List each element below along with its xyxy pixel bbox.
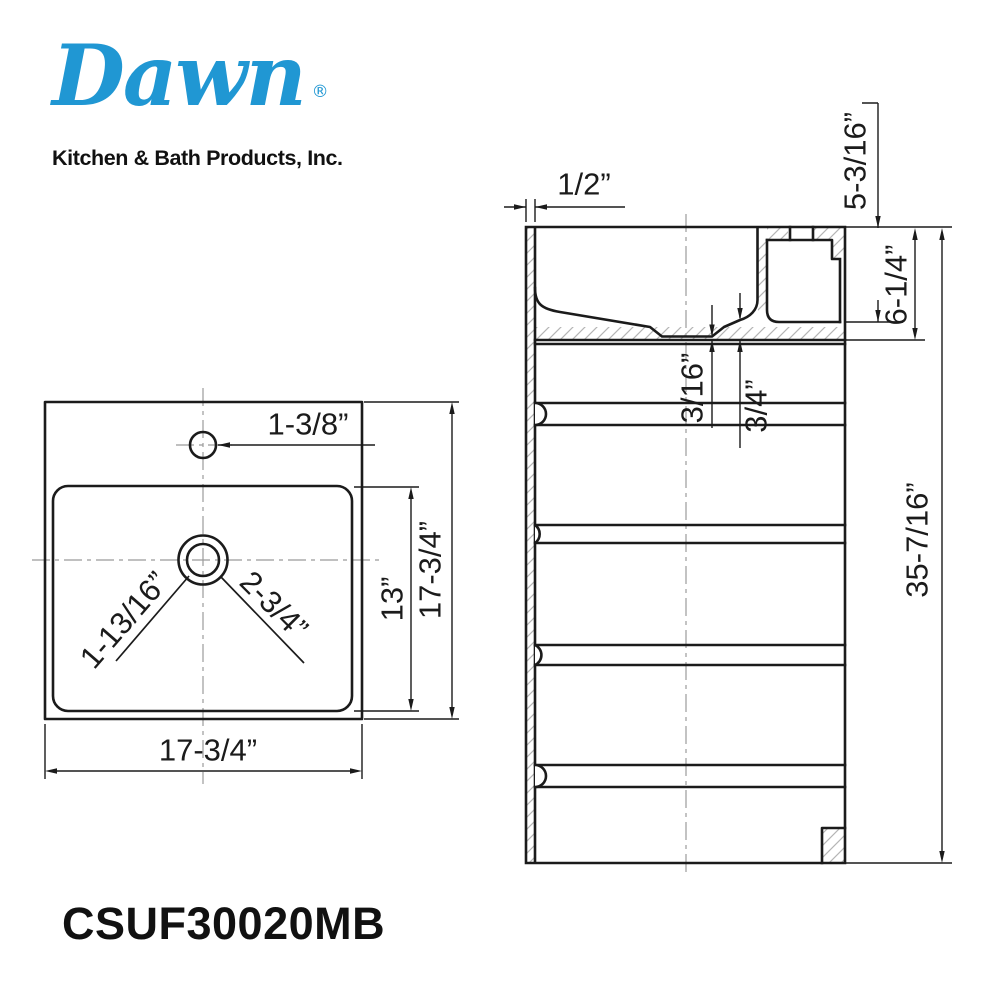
- dim-drain-offset-right: 2-3/4”: [233, 564, 315, 646]
- arrowhead: [218, 442, 230, 447]
- dim-bottom-thickness: 3/4”: [739, 379, 774, 432]
- groove-notch: [535, 403, 546, 425]
- dim-overall-depth: 17-3/4”: [413, 521, 448, 619]
- dim-bowl-length: 13”: [375, 577, 410, 622]
- dim-bowl-depth: 5-3/16”: [838, 112, 873, 210]
- dim-drain-recess: 3/16”: [675, 353, 710, 424]
- dim-overall-height: 35-7/16”: [900, 482, 935, 597]
- side-view: 1/2” 5-3/16” 6-1/4” 3/16” 3/4” 35-7/16”: [504, 103, 952, 876]
- faucet-hole-section: [790, 227, 813, 240]
- groove-notch: [535, 525, 540, 543]
- faucet-deck-section: [767, 227, 840, 322]
- groove-notch: [535, 765, 546, 787]
- dim-overall-width: 17-3/4”: [159, 733, 257, 768]
- basin-profile: [535, 228, 758, 337]
- brand-logo: Dawn® Kitchen & Bath Products, Inc.: [52, 26, 412, 171]
- registered-trademark-symbol: ®: [312, 82, 329, 102]
- technical-drawing-page: 1-3/8” 13” 17-3/4” 17-3/4” 1-13/16” 2-3/…: [0, 0, 1000, 1000]
- dim-faucet-hole-diameter: 1-3/8”: [268, 407, 349, 442]
- dim-rim-thickness: 1/2”: [557, 167, 610, 202]
- dim-drain-offset-left: 1-13/16”: [73, 565, 175, 675]
- dim-deck-height: 6-1/4”: [879, 245, 914, 326]
- dim-drain-recess-group: [709, 305, 714, 428]
- pedestal-grooves: [535, 403, 845, 787]
- groove-notch: [535, 645, 541, 665]
- brand-tagline: Kitchen & Bath Products, Inc.: [52, 146, 412, 171]
- brand-name: Dawn: [52, 26, 305, 125]
- sink-underside: [535, 340, 845, 344]
- model-number: CSUF30020MB: [62, 898, 385, 950]
- brand-wordmark: Dawn®: [52, 26, 412, 142]
- dim-rim-group: [504, 199, 625, 222]
- front-view: 1-3/8” 13” 17-3/4” 17-3/4” 1-13/16” 2-3/…: [32, 388, 459, 784]
